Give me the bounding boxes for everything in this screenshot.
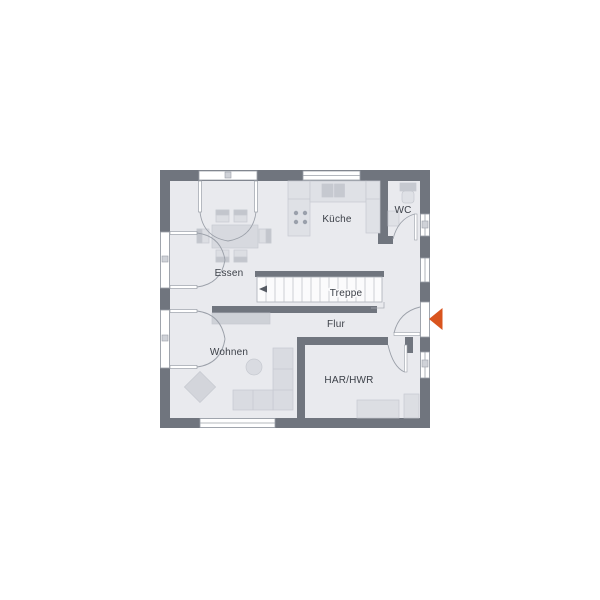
sink-basin (322, 184, 333, 197)
appliance-washer (357, 400, 399, 418)
room-label-wohnen: Wohnen (210, 347, 248, 358)
sofa-right-arm (273, 348, 293, 410)
burner (294, 211, 298, 215)
room-label-flur: Flur (327, 319, 345, 330)
door-leaf (255, 181, 258, 212)
stair-top-rail (255, 271, 384, 277)
sideboard (212, 313, 270, 324)
appliance-dryer (404, 394, 419, 418)
burner (294, 220, 298, 224)
terrace-door-marker (225, 172, 231, 178)
room-label-essen: Essen (215, 268, 244, 279)
door-leaf (170, 310, 197, 313)
chair-back (216, 257, 229, 262)
floor-plan-page: Essen Küche WC Treppe Flur Wohnen HAR/HW… (0, 0, 600, 600)
chair-back (216, 210, 229, 215)
door-leaf (199, 181, 202, 212)
entrance-arrow-icon (429, 308, 443, 330)
wall-wc-south (378, 236, 393, 244)
room-label-kueche: Küche (322, 214, 352, 225)
toilet-bowl (402, 191, 414, 203)
kitchen-counter-left (288, 181, 310, 236)
floor-plan-drawing: Essen Küche WC Treppe Flur Wohnen HAR/HW… (0, 0, 600, 600)
stair-knee-wall (212, 306, 377, 313)
door-leaf (170, 286, 197, 289)
door-leaf (405, 345, 408, 372)
chair-back (234, 210, 247, 215)
left-door-1-marker (162, 256, 168, 262)
wall-har-top (297, 337, 388, 345)
wc-window-marker (422, 221, 428, 228)
room-label-wc: WC (394, 205, 411, 216)
entrance-door-opening (421, 302, 430, 337)
exterior-wall-left (160, 170, 170, 428)
chair-back (197, 229, 202, 243)
left-door-2-marker (162, 335, 168, 341)
door-leaf (394, 333, 420, 336)
burner (303, 211, 307, 215)
stair-body (257, 277, 382, 302)
exterior-wall-right (420, 170, 430, 428)
wall-har-left (297, 337, 305, 418)
room-label-treppe: Treppe (330, 288, 363, 299)
sink-basin (335, 184, 345, 197)
door-leaf (170, 232, 197, 235)
burner (303, 220, 307, 224)
room-label-har-hwr: HAR/HWR (324, 375, 373, 386)
chair-back (266, 229, 271, 243)
chair-back (234, 257, 247, 262)
right-window-3-marker (422, 360, 428, 367)
kitchen-counter-right (366, 181, 380, 233)
door-leaf (415, 214, 418, 240)
toilet-tank (400, 183, 416, 191)
coffee-table (246, 359, 262, 375)
door-leaf (170, 366, 197, 369)
